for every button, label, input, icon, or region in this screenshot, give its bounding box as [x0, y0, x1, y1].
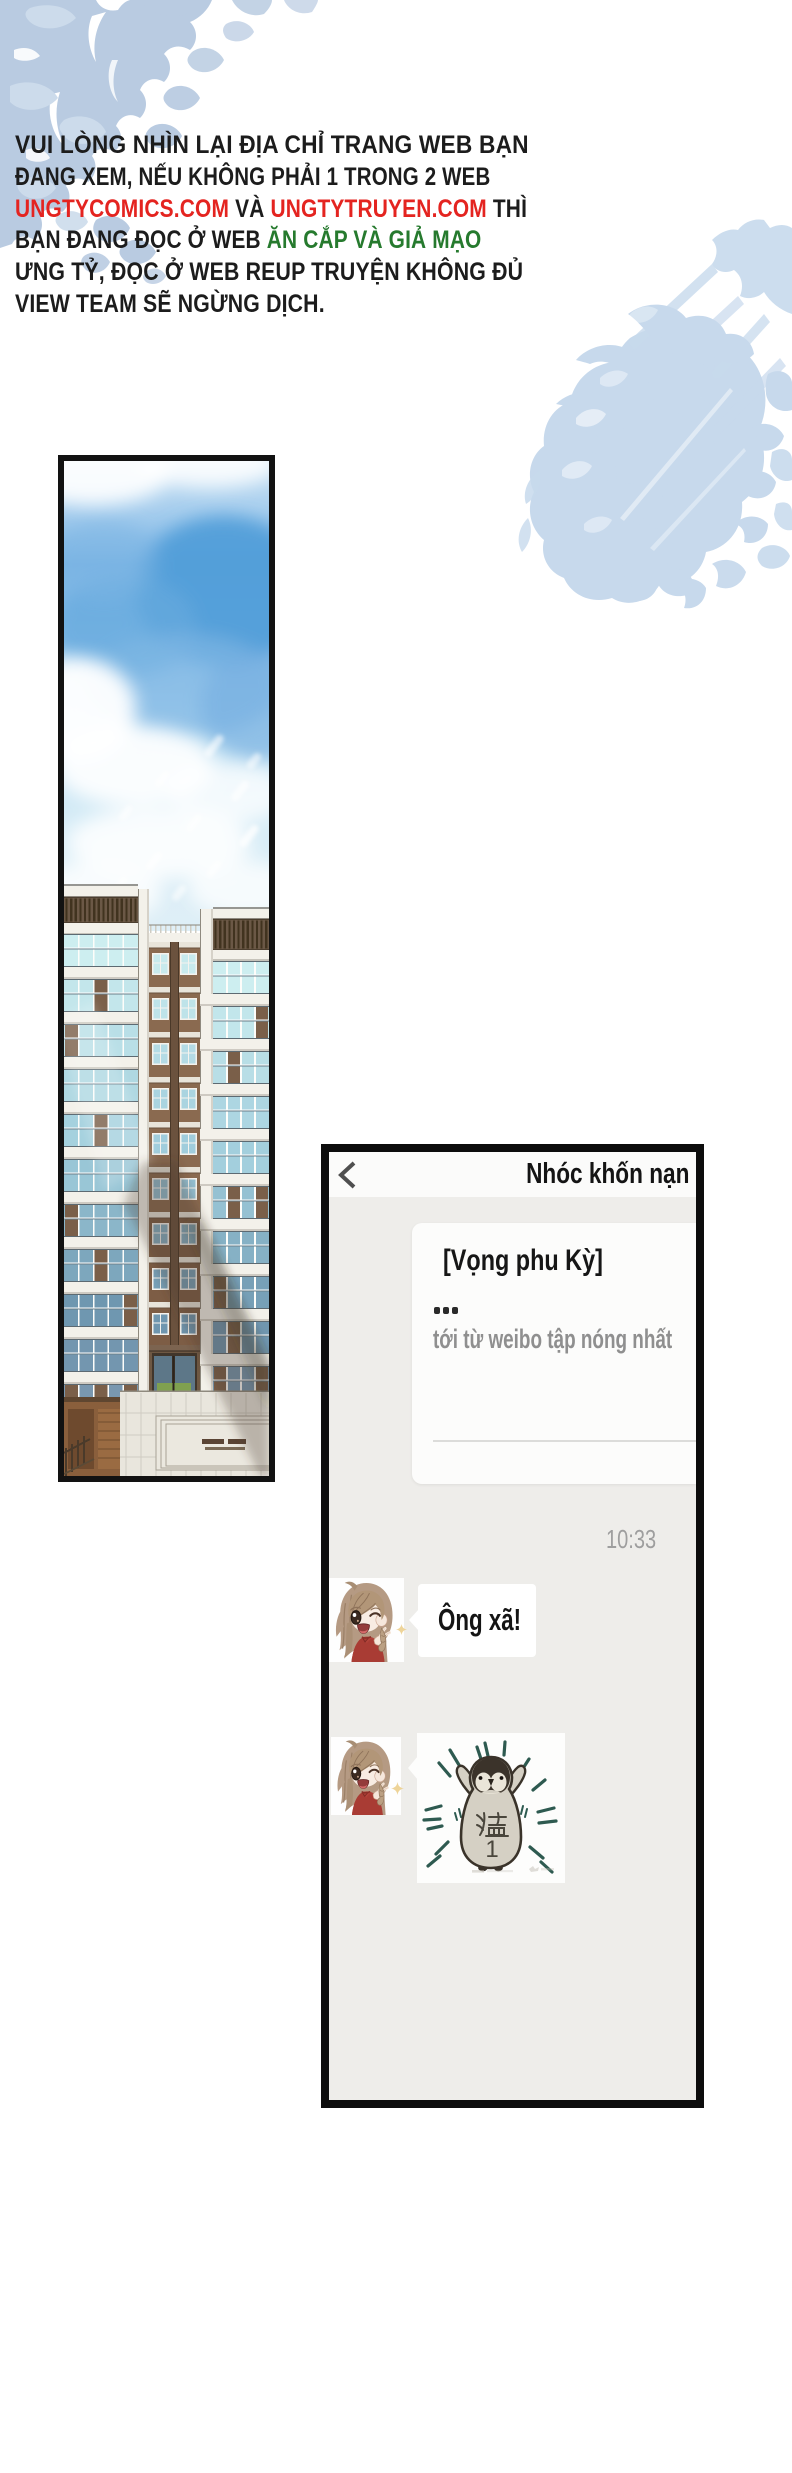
svg-text:1: 1 [485, 1836, 498, 1863]
